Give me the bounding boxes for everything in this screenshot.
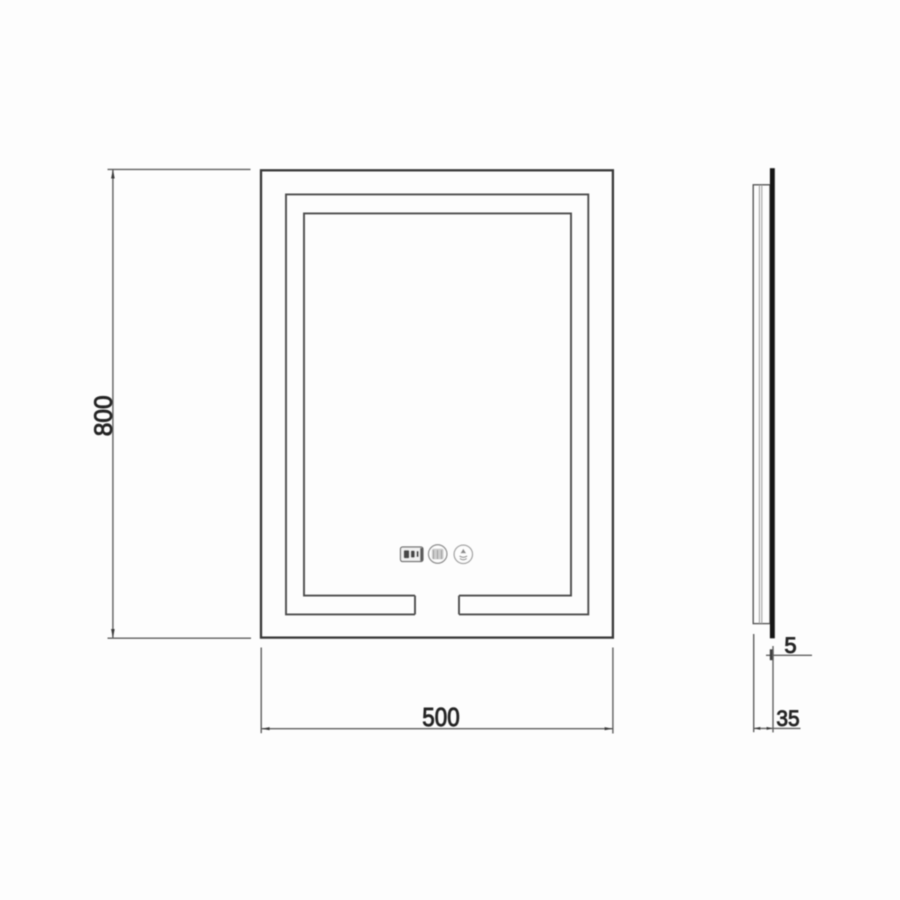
svg-text:800: 800 bbox=[91, 395, 118, 436]
svg-text:5: 5 bbox=[784, 633, 796, 658]
svg-text:35: 35 bbox=[776, 707, 799, 732]
svg-text:500: 500 bbox=[422, 704, 459, 733]
